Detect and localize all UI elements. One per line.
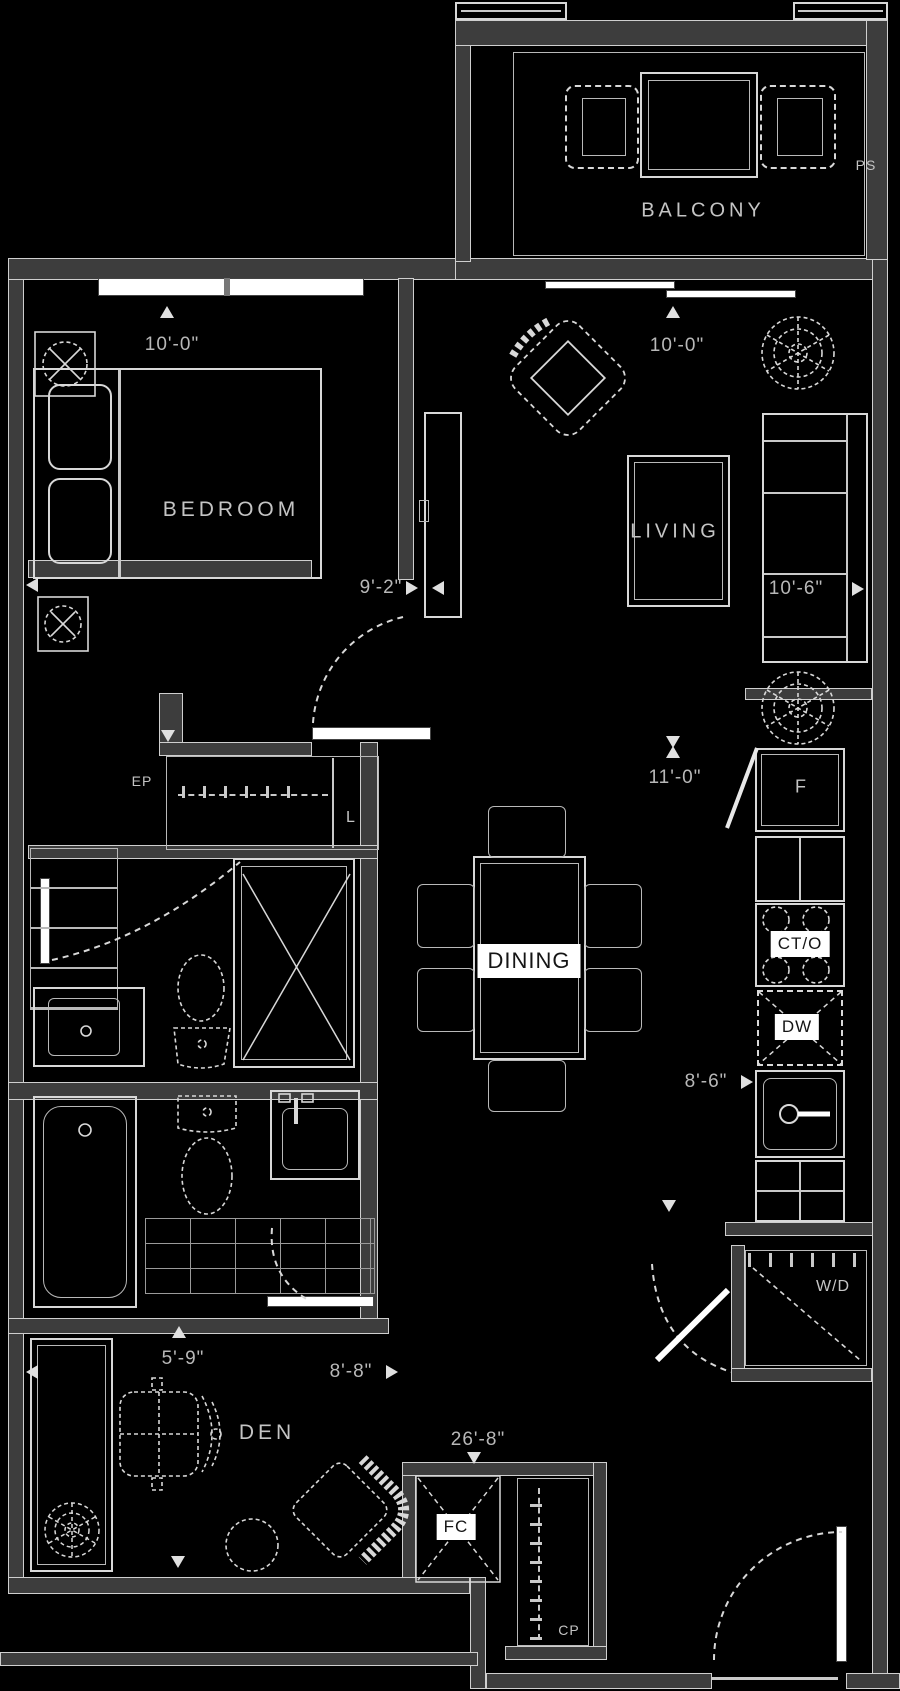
dim-arrow-right-bedroom <box>406 581 418 595</box>
coat-closet-label: CP <box>558 1622 579 1638</box>
dim-den-width: 5'-9" <box>162 1348 205 1370</box>
linen-label: L <box>346 809 356 827</box>
bath1-faucet <box>81 1026 91 1036</box>
shower-glass-x <box>243 874 350 1060</box>
bedroom-label: BEDROOM <box>163 498 300 522</box>
dim-bedroom-width: 10'-0" <box>145 334 199 356</box>
dim-arrow-left-divider <box>432 581 444 595</box>
fridge-label: F <box>795 777 807 798</box>
bath2-door-arc <box>272 1228 308 1300</box>
kitchen-faucet <box>780 1105 830 1123</box>
dim-arrow-down-kitchen <box>662 1200 676 1212</box>
cooktop-label: CT/O <box>771 931 830 957</box>
hall-door-leaf <box>657 1290 728 1360</box>
fan-coil-label: FC <box>437 1514 476 1540</box>
living-armchair <box>495 305 631 441</box>
dining-label: DINING <box>478 944 581 978</box>
dim-arrow-down-den <box>171 1556 185 1568</box>
entry-door-arc <box>714 1532 842 1660</box>
plant-living-bottom <box>762 672 834 744</box>
dim-unit-length: 26'-8" <box>451 1429 505 1451</box>
den-label: DEN <box>239 1421 295 1445</box>
dim-arrow-right-den <box>386 1365 398 1379</box>
dim-arrow-right-living <box>852 582 864 596</box>
plant-living-top <box>762 317 834 389</box>
toilet-bath1 <box>174 955 230 1068</box>
lounge-chair <box>289 1448 413 1572</box>
kitchen-entry-door <box>727 748 757 828</box>
balcony-label: BALCONY <box>641 200 765 223</box>
dim-arrow-up-den <box>172 1326 186 1338</box>
dim-living-width: 10'-0" <box>650 335 704 357</box>
dishwasher-label: DW <box>775 1014 819 1040</box>
electrical-panel-label: EP <box>132 773 153 789</box>
toilet-bath2 <box>178 1096 236 1214</box>
bath1-door-arc <box>52 862 240 960</box>
light-fixture-1 <box>35 332 95 396</box>
bedroom-door-arc <box>313 617 403 723</box>
dim-arrow-left-bedroom <box>26 578 38 592</box>
light-fixture-2 <box>38 597 88 651</box>
dim-den-length: 8'-8" <box>330 1361 373 1383</box>
side-table <box>226 1519 278 1571</box>
tub-faucet <box>79 1124 91 1136</box>
dim-arrow-left-den <box>26 1365 38 1379</box>
dim-arrow-up-living <box>666 306 680 318</box>
dim-arrow-hourglass-bottom <box>666 746 680 758</box>
plant-den <box>45 1503 99 1557</box>
office-chair <box>120 1378 221 1490</box>
washer-dryer-label: W/D <box>816 1278 850 1296</box>
dim-bedroom-depth: 9'-2" <box>360 577 403 599</box>
dim-kitchen-width: 8'-6" <box>685 1071 728 1093</box>
dim-living-depth: 10'-6" <box>769 578 823 600</box>
floor-plan: BALCONY BEDROOM LIVING DEN DINING F CT/O… <box>0 0 900 1691</box>
dim-arrow-up-bedroom <box>160 306 174 318</box>
dim-kitchen-length: 11'-0" <box>649 767 702 789</box>
dim-arrow-down-bedroom <box>161 730 175 742</box>
bath2-faucet <box>279 1094 313 1124</box>
dim-arrow-down-unit <box>467 1452 481 1464</box>
privacy-screen-label: PS <box>856 157 877 173</box>
dim-arrow-right-kitchen <box>741 1075 753 1089</box>
living-label: LIVING <box>630 521 720 544</box>
